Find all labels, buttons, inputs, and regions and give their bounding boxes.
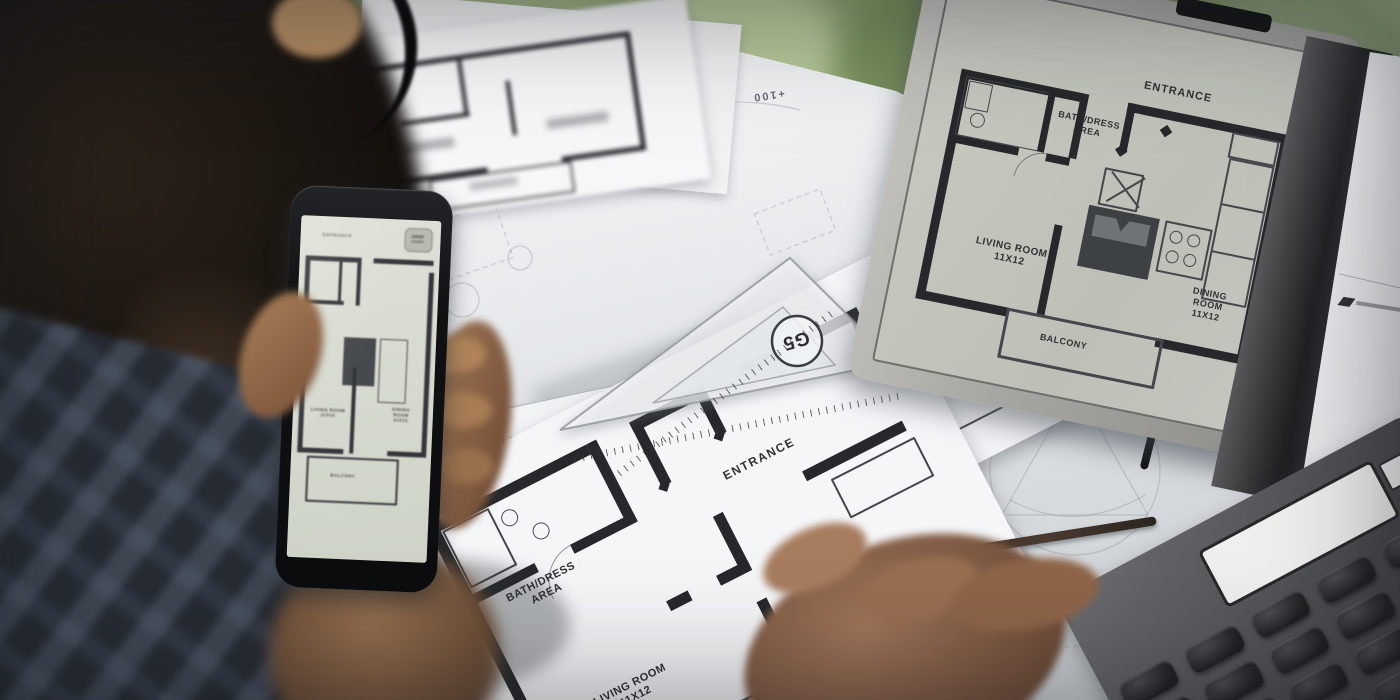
- stove-burner: [1164, 249, 1179, 264]
- wall: [1045, 153, 1070, 166]
- wall: [666, 590, 692, 611]
- fridge-outline: [1098, 167, 1145, 212]
- living-label: LIVING ROOM 11X12: [592, 662, 675, 700]
- wall: [625, 31, 647, 151]
- photo-architect-desk: +100 G4 ENTRY: [0, 0, 1400, 700]
- kitchen-island: [1077, 205, 1160, 280]
- bath-text: BATH/DRESS AREA: [1048, 107, 1129, 144]
- counter-divider: [1222, 203, 1263, 213]
- screen-glare: [287, 215, 442, 563]
- letterhead-logo-mark: [1356, 301, 1400, 314]
- stove-burner: [1186, 233, 1201, 248]
- wall: [1154, 338, 1246, 365]
- wall: [915, 289, 1009, 317]
- bath-label: BATH/DRESS AREA: [1048, 107, 1129, 144]
- wall: [561, 145, 646, 162]
- blurred-label: [546, 111, 609, 130]
- fixture-circle: [530, 520, 553, 543]
- calculator-key: [1117, 658, 1182, 700]
- living-label: LIVING ROOM 11X12: [972, 235, 1048, 273]
- stove-burner: [1182, 253, 1197, 268]
- wall: [570, 513, 638, 554]
- counter-divider: [1212, 250, 1253, 260]
- wall: [456, 55, 468, 115]
- fridge-x: [1106, 177, 1146, 201]
- wall: [505, 80, 517, 135]
- door-chevron: [1160, 125, 1172, 137]
- stove-outline: [1155, 220, 1212, 281]
- wall: [400, 112, 470, 126]
- island-top: [1091, 214, 1150, 247]
- door-chevron: [659, 481, 670, 492]
- door-arc: [1014, 148, 1048, 182]
- calculator-key: [1380, 518, 1400, 570]
- phone-screen: ENTRANCE LIVING ROOM: [287, 215, 442, 563]
- entrance-label: ENTRANCE: [1143, 79, 1213, 106]
- finger: [436, 448, 494, 484]
- letterhead-logo-mark: [1337, 297, 1355, 307]
- fixture-circle: [498, 506, 521, 529]
- stove-burner: [1168, 230, 1183, 245]
- wall: [716, 560, 752, 586]
